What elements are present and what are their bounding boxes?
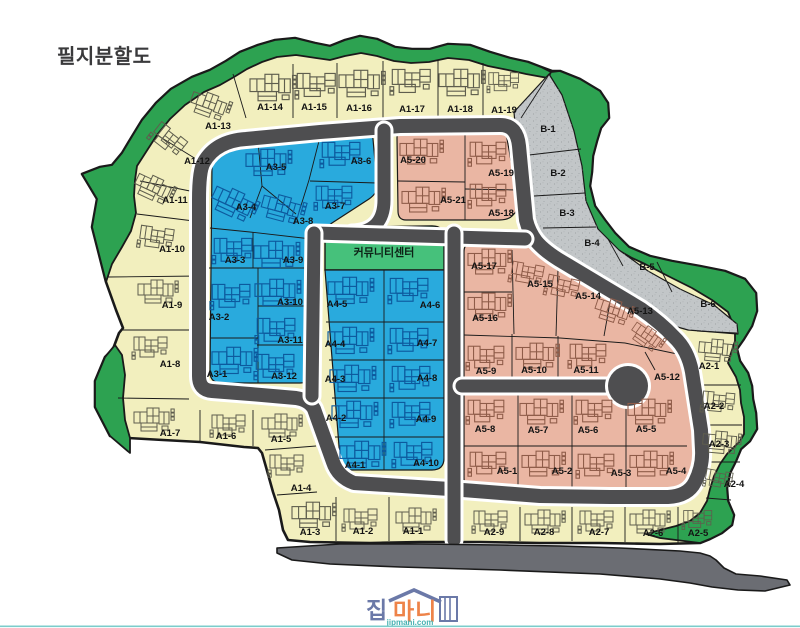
svg-text:A3-7: A3-7 xyxy=(325,201,346,212)
svg-text:A1-3: A1-3 xyxy=(300,527,321,538)
svg-text:A1-13: A1-13 xyxy=(205,121,231,132)
svg-text:A1-19: A1-19 xyxy=(491,105,517,116)
svg-text:A2-1: A2-1 xyxy=(699,361,720,372)
svg-text:A1-6: A1-6 xyxy=(216,431,237,442)
svg-text:A1-10: A1-10 xyxy=(159,244,185,255)
svg-text:A2-6: A2-6 xyxy=(643,528,664,539)
svg-text:A4-6: A4-6 xyxy=(420,300,441,311)
svg-text:커뮤니티센터: 커뮤니티센터 xyxy=(354,245,415,259)
svg-text:A4-2: A4-2 xyxy=(326,413,347,424)
svg-text:B-2: B-2 xyxy=(550,168,565,179)
svg-text:A5-15: A5-15 xyxy=(527,279,554,290)
svg-text:A5-9: A5-9 xyxy=(476,366,497,377)
svg-text:A5-7: A5-7 xyxy=(528,425,549,436)
svg-text:A5-8: A5-8 xyxy=(475,424,496,435)
svg-text:A5-12: A5-12 xyxy=(654,372,680,383)
svg-text:A1-8: A1-8 xyxy=(160,359,181,370)
svg-text:A4-7: A4-7 xyxy=(417,338,438,349)
svg-text:A3-5: A3-5 xyxy=(266,162,287,173)
svg-text:A1-15: A1-15 xyxy=(301,102,328,113)
svg-text:A5-13: A5-13 xyxy=(627,306,653,317)
svg-text:A5-2: A5-2 xyxy=(552,466,573,477)
svg-text:A5-18: A5-18 xyxy=(488,208,514,219)
svg-text:B-5: B-5 xyxy=(639,262,655,273)
svg-text:A5-5: A5-5 xyxy=(636,424,657,435)
svg-text:A1-18: A1-18 xyxy=(447,104,473,115)
svg-text:A2-3: A2-3 xyxy=(709,439,730,450)
svg-text:A1-7: A1-7 xyxy=(160,428,181,439)
svg-text:A3-8: A3-8 xyxy=(293,216,314,227)
svg-text:A5-17: A5-17 xyxy=(471,261,497,272)
svg-text:A2-9: A2-9 xyxy=(484,527,505,538)
svg-text:A3-10: A3-10 xyxy=(277,297,303,308)
svg-text:A3-6: A3-6 xyxy=(351,156,372,167)
svg-text:A1-12: A1-12 xyxy=(184,156,210,167)
svg-text:A2-4: A2-4 xyxy=(724,479,745,490)
svg-text:A3-12: A3-12 xyxy=(271,371,297,382)
svg-text:A4-9: A4-9 xyxy=(416,414,437,425)
svg-text:A4-1: A4-1 xyxy=(345,460,366,471)
svg-text:A5-3: A5-3 xyxy=(611,468,632,479)
svg-text:A5-11: A5-11 xyxy=(573,365,599,376)
svg-text:A5-1: A5-1 xyxy=(497,466,518,477)
svg-text:B-4: B-4 xyxy=(584,238,600,249)
svg-text:A2-5: A2-5 xyxy=(688,528,709,539)
svg-text:A1-11: A1-11 xyxy=(162,195,188,206)
svg-text:A2-7: A2-7 xyxy=(589,527,610,538)
svg-text:A4-8: A4-8 xyxy=(417,373,438,384)
svg-text:A3-1: A3-1 xyxy=(207,369,228,380)
svg-text:A5-20: A5-20 xyxy=(400,155,426,166)
svg-text:A4-4: A4-4 xyxy=(325,339,346,350)
svg-text:A5-21: A5-21 xyxy=(440,195,467,206)
svg-text:A1-4: A1-4 xyxy=(291,483,312,494)
svg-text:B-6: B-6 xyxy=(700,299,715,310)
svg-text:A5-19: A5-19 xyxy=(488,168,514,179)
svg-text:A3-9: A3-9 xyxy=(283,255,304,266)
svg-text:A1-16: A1-16 xyxy=(346,103,372,114)
svg-text:A5-16: A5-16 xyxy=(472,313,498,324)
svg-text:집: 집 xyxy=(366,597,387,623)
svg-text:A1-1: A1-1 xyxy=(403,526,424,537)
svg-text:A1-5: A1-5 xyxy=(271,434,292,445)
svg-text:필지분할도: 필지분할도 xyxy=(57,45,152,68)
svg-text:A1-14: A1-14 xyxy=(257,102,284,113)
svg-text:B-1: B-1 xyxy=(540,124,556,135)
svg-text:A3-4: A3-4 xyxy=(236,202,257,213)
svg-text:A2-8: A2-8 xyxy=(534,527,555,538)
svg-text:B-3: B-3 xyxy=(559,208,574,219)
svg-text:A2-2: A2-2 xyxy=(704,401,725,412)
svg-text:A5-6: A5-6 xyxy=(578,425,599,436)
svg-text:A1-2: A1-2 xyxy=(353,526,374,537)
svg-text:A3-2: A3-2 xyxy=(209,312,230,323)
svg-text:A4-3: A4-3 xyxy=(325,374,346,385)
svg-text:A1-9: A1-9 xyxy=(162,300,183,311)
svg-text:A5-4: A5-4 xyxy=(666,466,687,477)
svg-text:A3-3: A3-3 xyxy=(225,255,246,266)
svg-text:A1-17: A1-17 xyxy=(399,104,425,115)
svg-text:A5-14: A5-14 xyxy=(575,291,602,302)
svg-text:A4-5: A4-5 xyxy=(327,299,348,310)
svg-text:A3-11: A3-11 xyxy=(277,335,303,346)
svg-text:A5-10: A5-10 xyxy=(521,365,547,376)
svg-text:A4-10: A4-10 xyxy=(413,458,439,469)
